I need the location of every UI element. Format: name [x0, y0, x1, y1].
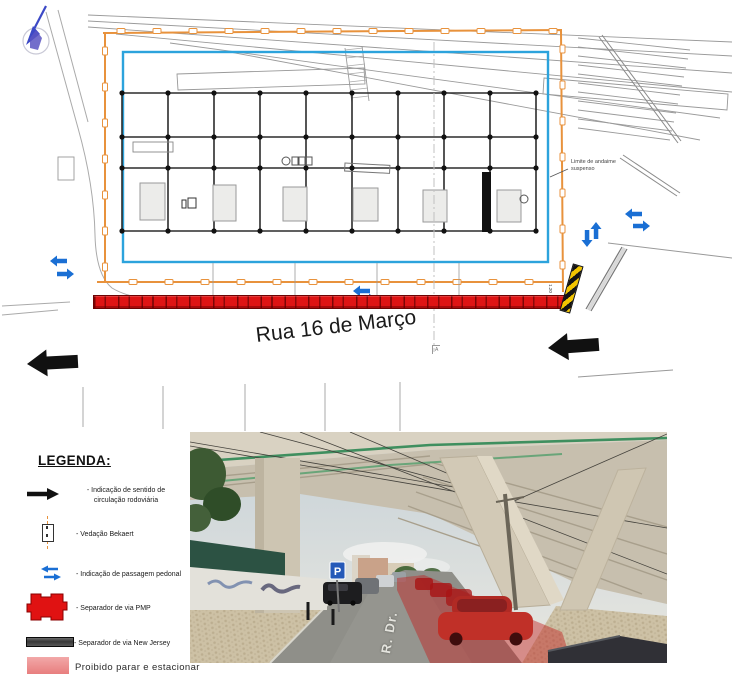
legend-item-label: - Separador de via PMP [76, 604, 196, 614]
pmp-separator-icon [25, 592, 69, 622]
pedestrian-passage-arrow [582, 230, 593, 247]
legend-item-label: - Indicação de passagem pedonal [76, 570, 196, 580]
new-jersey-separator-icon [26, 637, 74, 647]
street-view-scene: P [190, 432, 667, 663]
legend-item-label: Proibido parar e estacionar [75, 661, 225, 674]
traffic-direction-arrow [26, 348, 78, 378]
direction-arrow-icon [27, 488, 59, 500]
street-view-photo: P R. Dr. [190, 432, 667, 663]
traffic-direction-arrow [547, 331, 600, 361]
scaffold-limit-note: Limite de andaime suspenso [571, 159, 629, 173]
building-grid [119, 90, 538, 233]
traffic-conditioning-figure: Rua 16 de Março Limite de andaime suspen… [0, 0, 732, 697]
pedestrian-crossing-icon [41, 565, 61, 581]
legend-item-label: - Vedação Bekaert [76, 530, 186, 540]
pedestrian-passage-arrow [57, 269, 74, 280]
pedestrian-passage-arrow [50, 256, 67, 267]
pedestrian-passage-arrow [591, 222, 602, 239]
north-arrow-icon [23, 6, 49, 54]
no-stopping-zone-icon [27, 657, 69, 674]
pmp-separator-row [93, 295, 571, 309]
legend-title: LEGENDA: [38, 453, 111, 468]
legend-item-label: - Indicação de sentido de circulação rod… [74, 486, 178, 506]
pedestrian-passage-arrow [625, 209, 642, 220]
legend-item-label: - Separador de via New Jersey [74, 639, 204, 649]
dimension-label: 1.20 [548, 284, 553, 293]
bekaert-fence-icon [41, 516, 55, 549]
svg-text:P: P [334, 566, 341, 578]
pedestrian-passage-arrow [633, 221, 650, 232]
site-plan-drawing [0, 0, 732, 460]
section-marker-label: A [432, 345, 440, 354]
